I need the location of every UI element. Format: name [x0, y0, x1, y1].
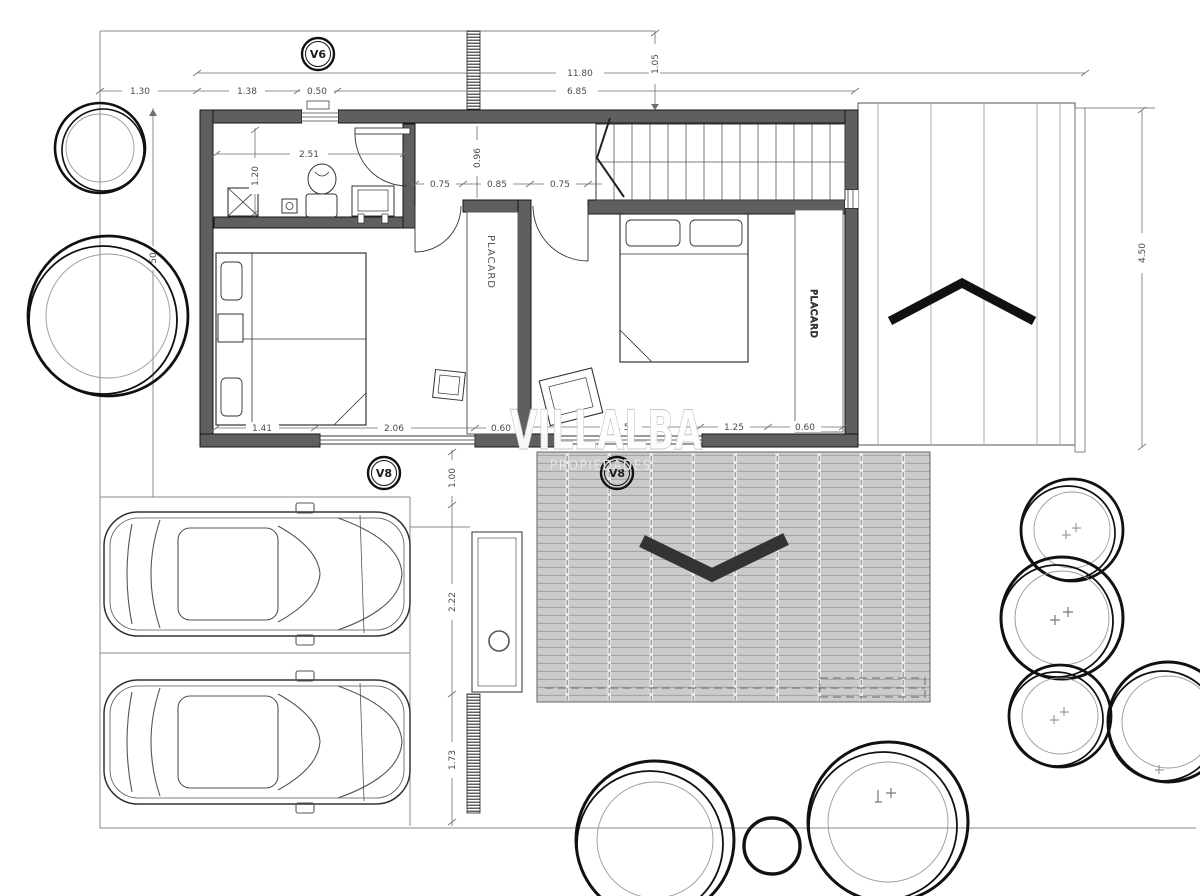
dim-yard-a: 1.00	[448, 468, 458, 488]
dim-b1-c: 0.60	[491, 424, 511, 434]
window-v6-opening	[302, 101, 338, 123]
dim-bath-width: 2.51	[299, 150, 319, 160]
dim-yard-b: 2.22	[448, 592, 458, 612]
floor-plan-drawing: PLACARD PLACARD	[0, 0, 1200, 896]
carport-lines	[100, 497, 470, 826]
stool	[433, 370, 466, 401]
planter	[472, 532, 522, 692]
dim-hall-a: 0.75	[430, 180, 450, 190]
dim-b1-a: 1.41	[252, 424, 272, 434]
stairs	[596, 118, 845, 200]
dim-right-height: 4.50	[1138, 243, 1148, 263]
closet-left-label: PLACARD	[485, 235, 496, 289]
tag-v8-left-label: V8	[376, 467, 392, 480]
toilet	[306, 164, 337, 217]
watermark-tagline: PROPIEDADES	[550, 458, 652, 474]
dim-b2-b: 1.25	[724, 423, 744, 433]
nightstand	[218, 314, 243, 342]
dim-b2-c: 0.60	[795, 423, 815, 433]
stair-break-line	[597, 118, 624, 197]
closet-right: PLACARD	[795, 210, 843, 432]
dim-yard-c: 1.73	[448, 750, 458, 770]
dim-bath-depth: 1.20	[251, 166, 261, 186]
bathroom-door	[355, 128, 410, 186]
tree	[1021, 479, 1123, 581]
dim-top-left-b: 1.38	[237, 87, 257, 97]
bedroom-1	[216, 253, 465, 425]
dim-hall-c: 0.75	[550, 180, 570, 190]
dim-top-left-c: 0.50	[307, 87, 327, 97]
tree	[744, 818, 800, 874]
dim-hall-depth: 0.96	[473, 148, 483, 168]
deck	[537, 452, 930, 702]
car-top-view	[104, 503, 410, 645]
dim-b1-b: 2.06	[384, 424, 404, 434]
tree	[1001, 557, 1123, 679]
dim-hall-b: 0.85	[487, 180, 507, 190]
tag-v6-label: V6	[310, 48, 327, 61]
bed-2	[620, 214, 748, 362]
cars	[104, 503, 410, 813]
car-top-view	[104, 671, 410, 813]
closet-right-label: PLACARD	[808, 289, 818, 338]
window-right-wall	[845, 190, 858, 208]
tree	[28, 236, 188, 396]
watermark-brand: VILLALBA	[510, 399, 702, 462]
tree	[808, 742, 968, 896]
roof-plan	[858, 103, 1085, 452]
dim-top-overall: 11.80	[567, 69, 593, 79]
tag-v8-left: V8	[368, 457, 400, 489]
floor-plan-page: PLACARD PLACARD	[0, 0, 1200, 896]
bidet	[282, 199, 297, 213]
window-v8-left-opening	[320, 436, 475, 444]
dim-top-left-a: 1.30	[130, 87, 150, 97]
dim-top-inner: 6.85	[567, 87, 587, 97]
dim-top-offset: 1.05	[651, 54, 661, 74]
tag-v6: V6	[302, 38, 334, 70]
tree	[1108, 662, 1200, 782]
